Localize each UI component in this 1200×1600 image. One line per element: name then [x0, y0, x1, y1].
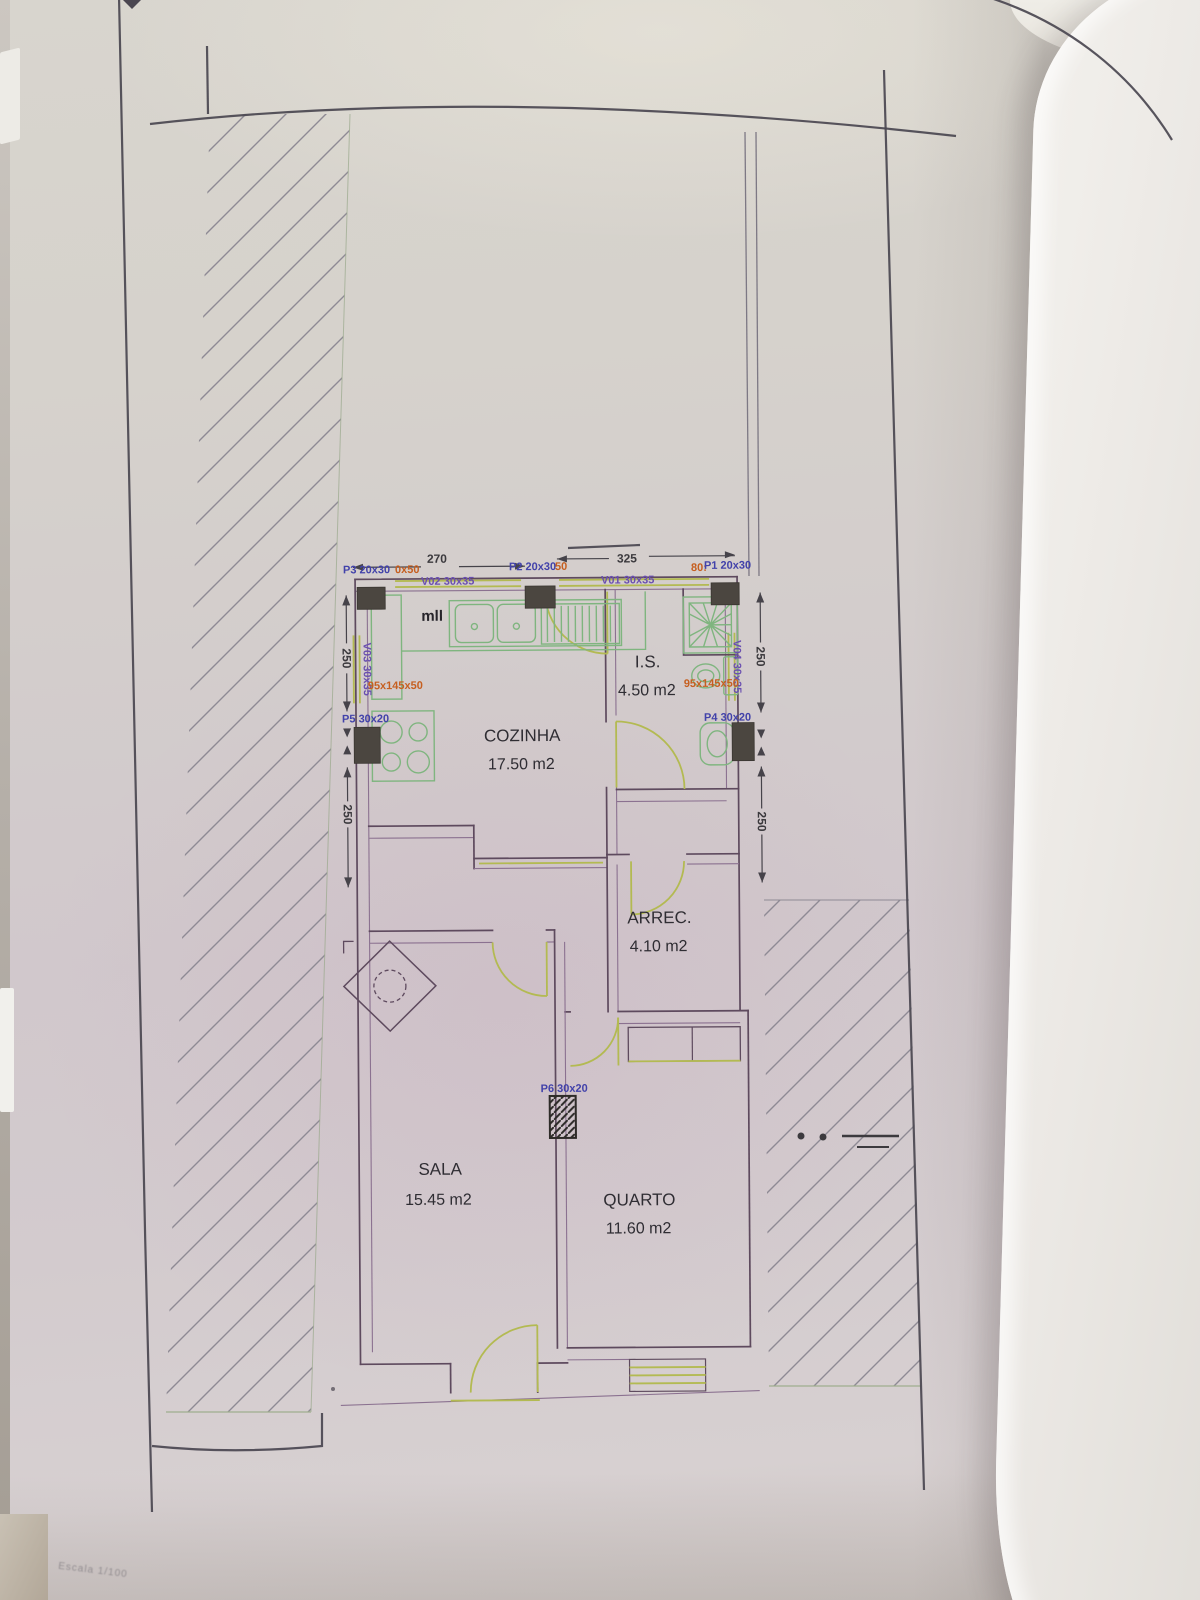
photo-bottom-left-corner — [0, 1514, 48, 1600]
page-sliver-mid-left — [0, 988, 14, 1112]
page-sliver-top-left — [0, 48, 20, 145]
floor-plan-photo: Escala 1/100 — [0, 0, 1200, 1600]
photo-left-edge — [0, 0, 10, 1600]
